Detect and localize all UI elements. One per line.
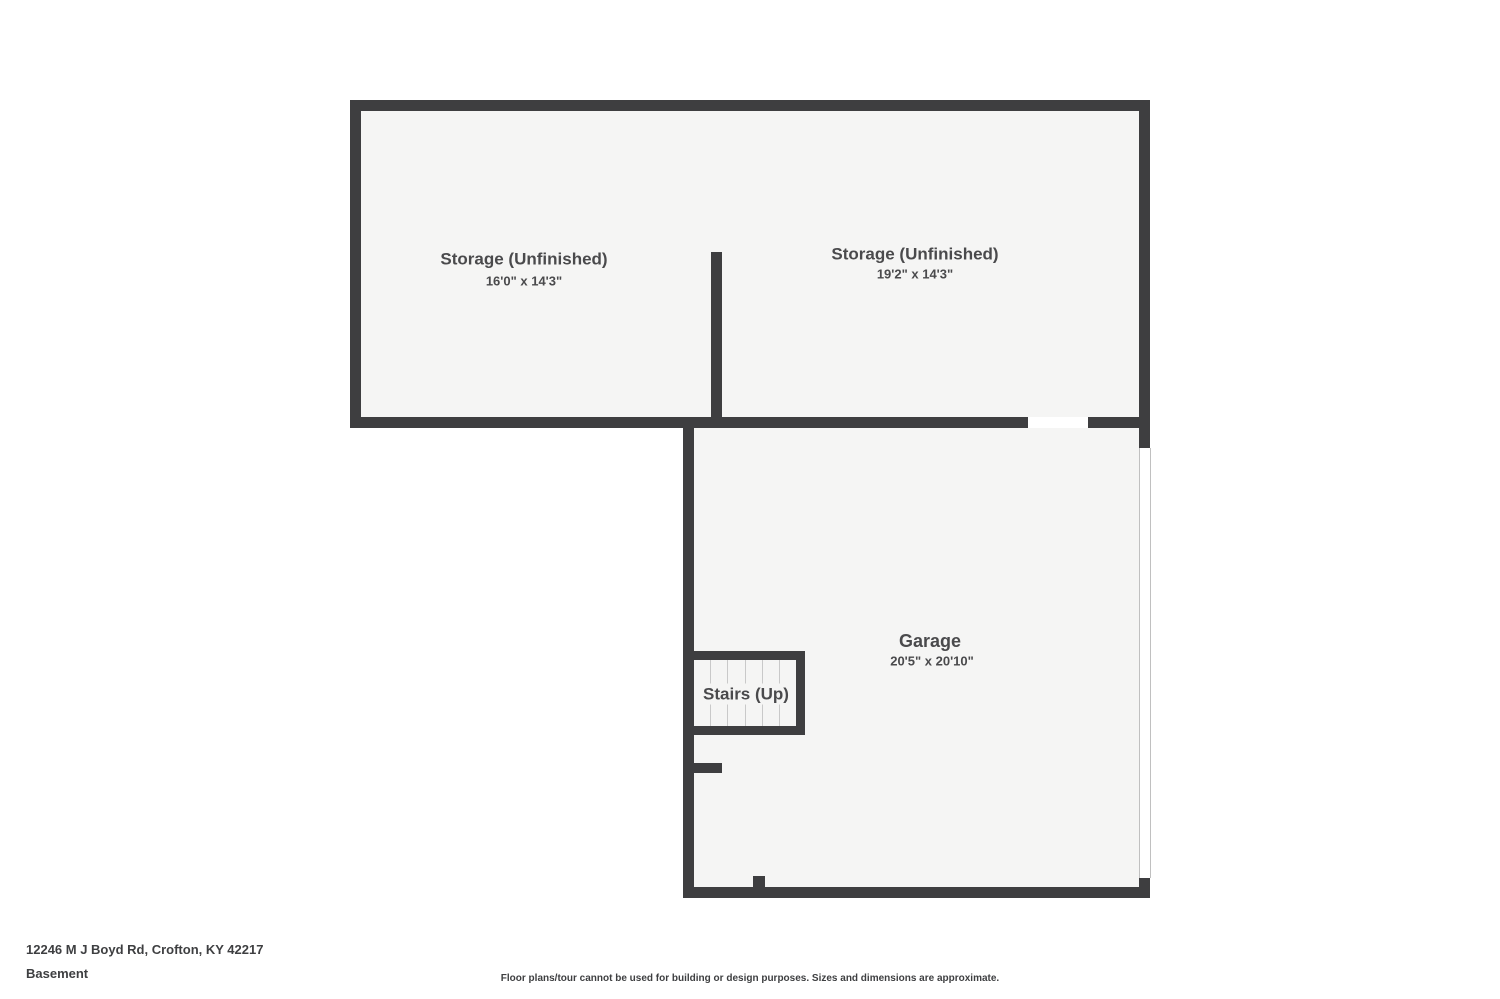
storage-left-wall	[350, 100, 361, 428]
stairs-bottom-wall	[683, 726, 805, 735]
room-label: Storage (Unfinished)	[440, 251, 607, 268]
room-label: Garage	[899, 632, 961, 650]
room-dimensions: 20'5" x 20'10"	[890, 655, 974, 668]
storage-right-wall	[1139, 100, 1150, 428]
garage-right-wall-bottom-stub	[1139, 878, 1150, 898]
disclaimer-text: Floor plans/tour cannot be used for buil…	[0, 973, 1500, 984]
room-label: Storage (Unfinished)	[831, 246, 998, 263]
door-opening	[1028, 417, 1088, 428]
floor-plan: Storage (Unfinished) 16'0" x 14'3" Stora…	[0, 0, 1500, 999]
stairs-right-wall	[796, 651, 805, 735]
room-dimensions: 16'0" x 14'3"	[486, 275, 562, 288]
interior-wall-stub	[683, 763, 722, 773]
room-label: Stairs (Up)	[700, 684, 792, 705]
storage-bottom-wall-right	[1088, 417, 1150, 428]
bottom-wall-stub	[753, 876, 765, 887]
garage-right-wall-top-stub	[1139, 428, 1150, 448]
storage-bottom-wall-left	[350, 417, 1028, 428]
room-dimensions: 19'2" x 14'3"	[877, 268, 953, 281]
garage-door	[1139, 448, 1151, 878]
garage-left-wall	[683, 428, 694, 898]
storage-divider-wall	[711, 252, 722, 417]
stairs-top-wall	[683, 651, 805, 660]
address-text: 12246 M J Boyd Rd, Crofton, KY 42217	[26, 942, 263, 957]
garage-bottom-wall	[683, 887, 1150, 898]
storage-top-wall	[350, 100, 1150, 111]
